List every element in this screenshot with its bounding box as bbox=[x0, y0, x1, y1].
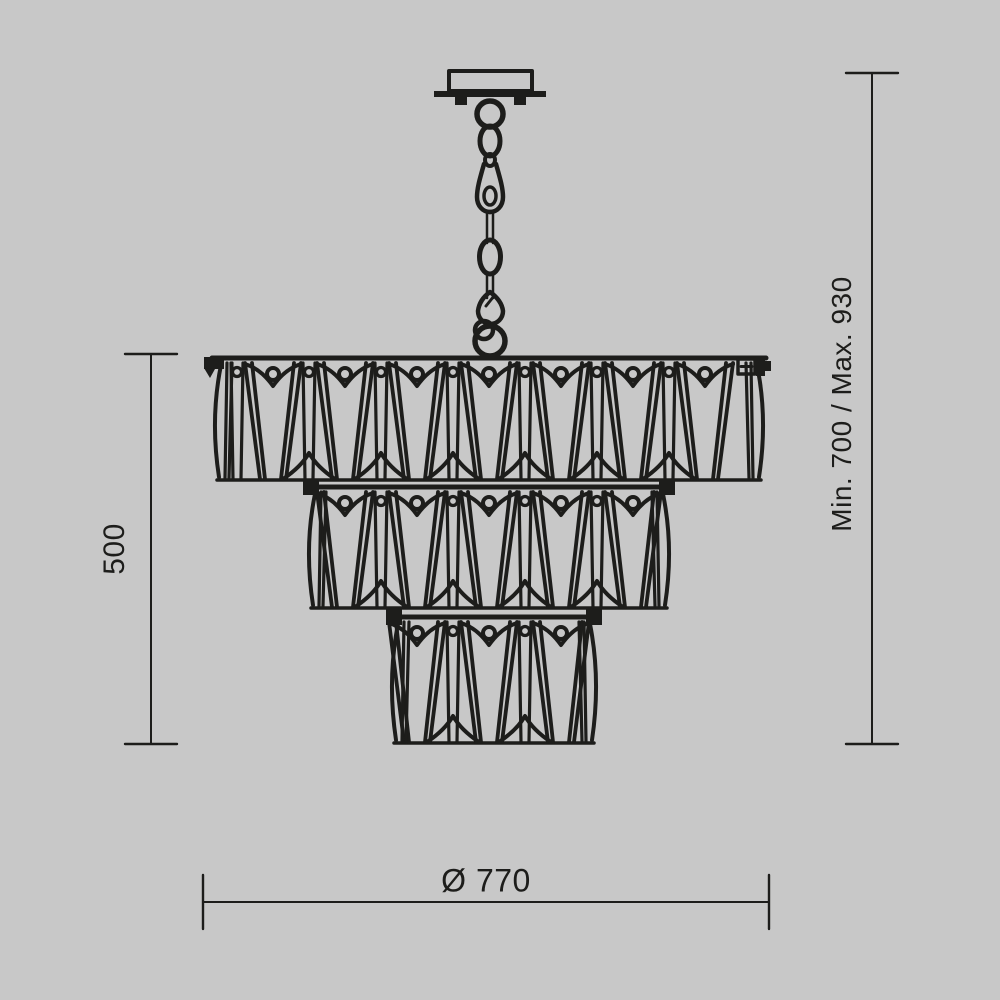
chandelier-tier-2 bbox=[303, 479, 675, 608]
chandelier-tier-1 bbox=[204, 357, 771, 480]
dimension-lines bbox=[125, 73, 898, 929]
dimension-label-overall-height: Min. 700 / Max. 930 bbox=[826, 276, 858, 531]
dimension-label-body-height: 500 bbox=[98, 523, 132, 575]
suspension-chain bbox=[475, 101, 505, 356]
technical-drawing-page: 500 Min. 700 / Max. 930 Ø 770 bbox=[0, 0, 1000, 1000]
chandelier-tier-3 bbox=[386, 609, 602, 743]
dimension-label-diameter: Ø 770 bbox=[441, 863, 531, 900]
